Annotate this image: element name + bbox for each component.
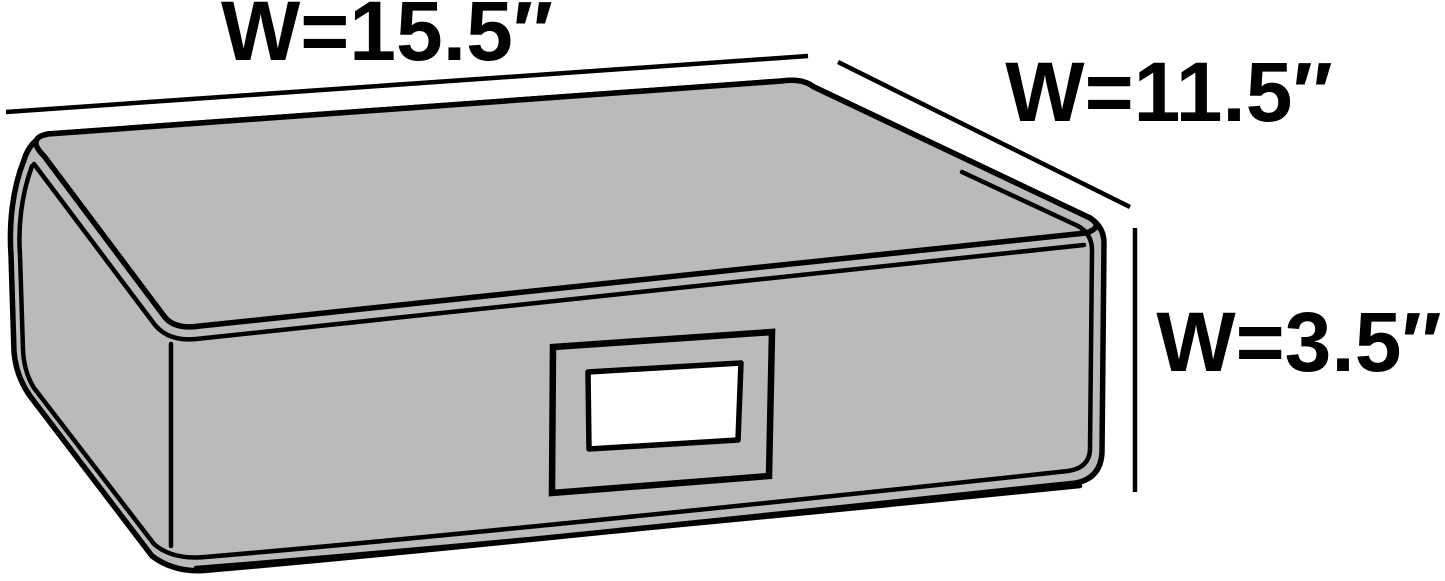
dimension-label-height: W=3.5″: [1156, 295, 1441, 389]
label-holder-window: [588, 363, 741, 449]
dimension-diagram: W=15.5″ W=11.5″ W=3.5″: [0, 0, 1445, 581]
dimension-label-top-width: W=15.5″: [221, 0, 553, 78]
storage-box-dimension-diagram: W=15.5″ W=11.5″ W=3.5″: [0, 0, 1445, 581]
dimension-label-side-width: W=11.5″: [1005, 45, 1332, 139]
